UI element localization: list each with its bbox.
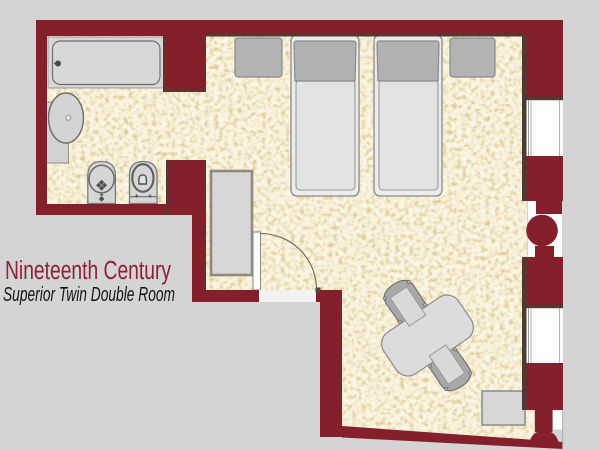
svg-text:Nineteenth Century: Nineteenth Century xyxy=(5,257,171,285)
svg-text:Superior Twin Double Room: Superior Twin Double Room xyxy=(3,284,175,306)
